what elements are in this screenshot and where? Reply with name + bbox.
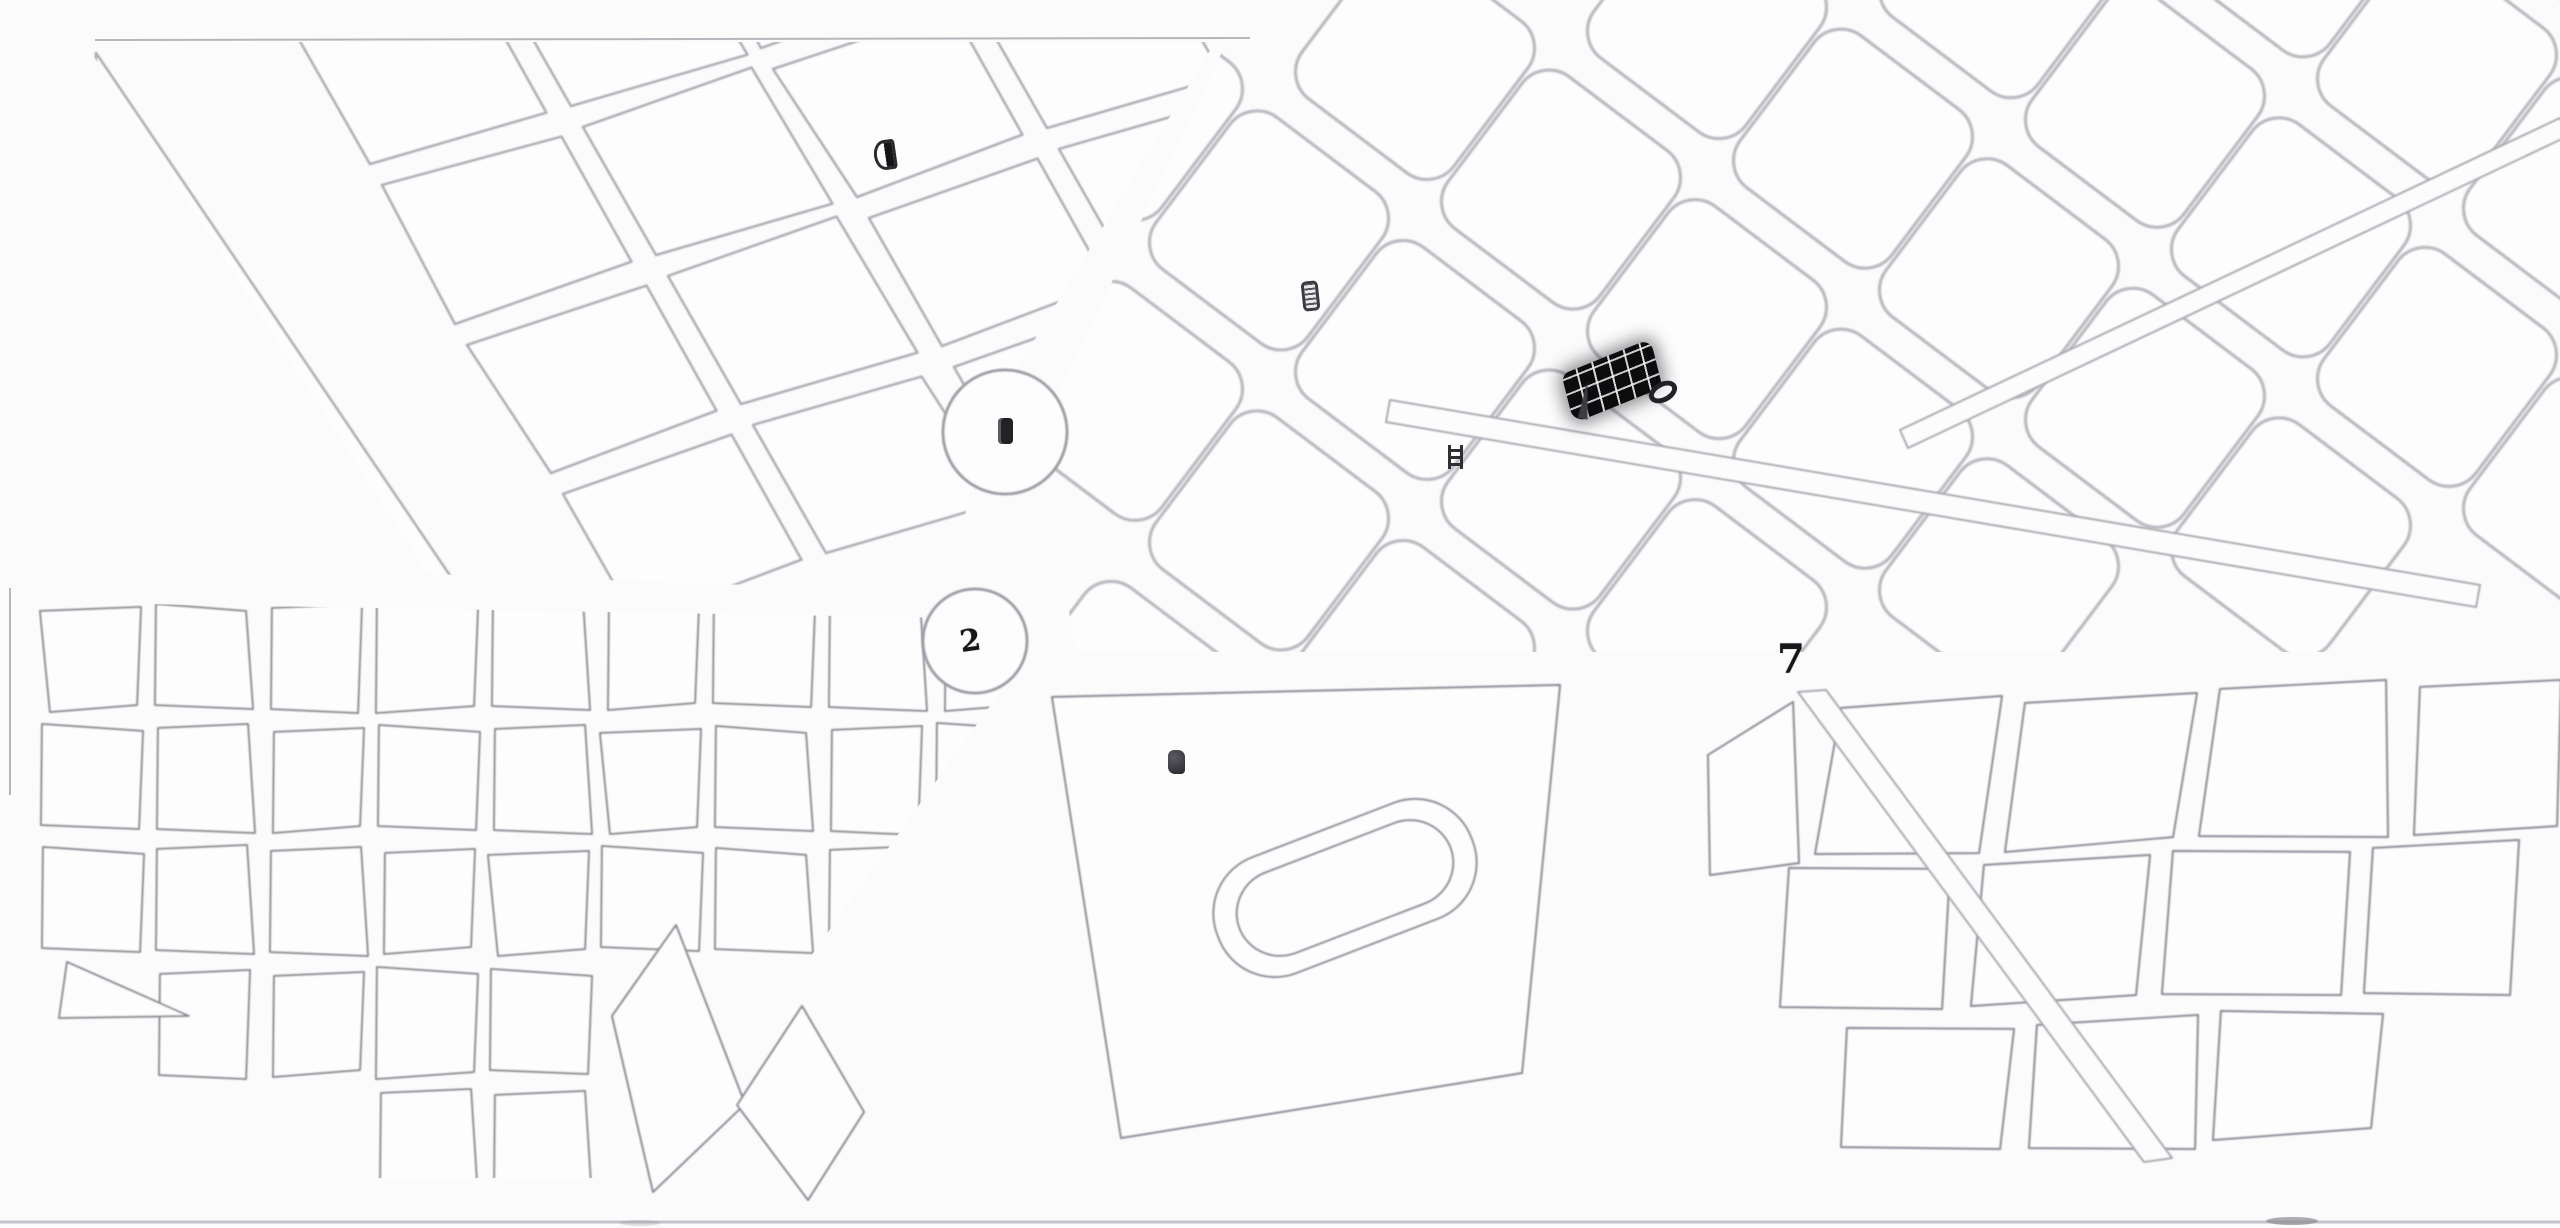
ladder-marker[interactable] [1448, 445, 1463, 469]
map-viewport[interactable]: 27 [0, 0, 2560, 1228]
block-5-marker[interactable] [1168, 750, 1185, 774]
plaza-2-marker[interactable]: 2 [958, 624, 992, 658]
half-disc-marker[interactable] [872, 139, 898, 172]
landmark-markers-layer: 27 [0, 0, 2560, 1228]
dark-building-landmark[interactable] [1561, 339, 1662, 424]
plaza-1-marker[interactable] [998, 418, 1013, 444]
junction-7-marker[interactable]: 7 [1777, 640, 1817, 680]
framed-marker[interactable] [1300, 280, 1320, 312]
